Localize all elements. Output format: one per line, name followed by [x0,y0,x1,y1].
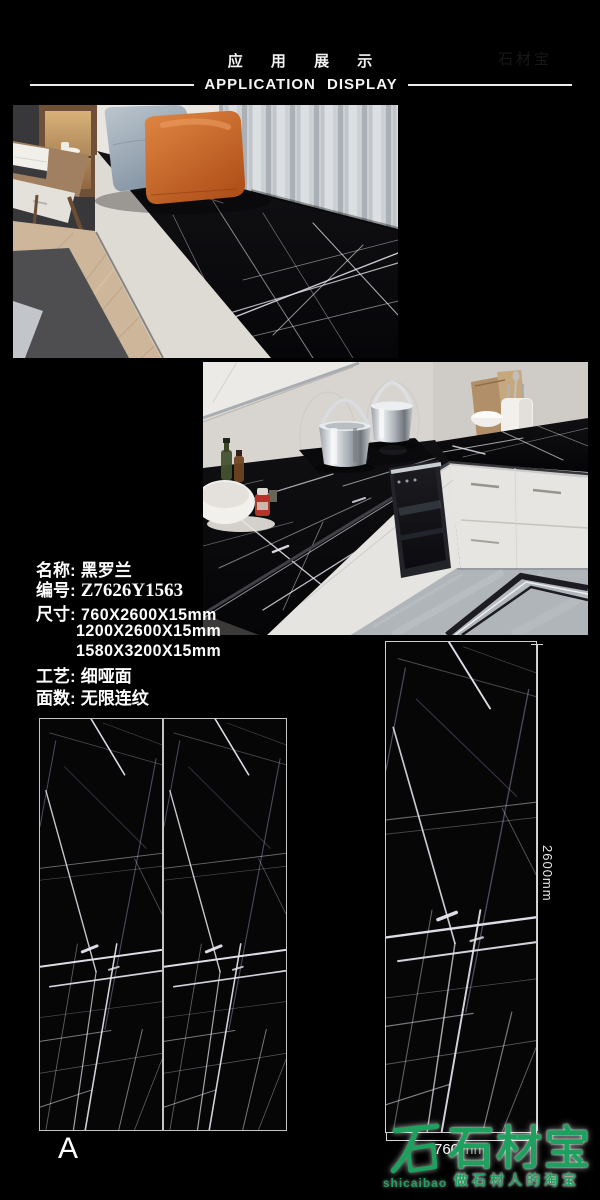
spec-pattern-value: 无限连纹 [81,689,149,708]
spec-size-3: 1580X3200X15mm [76,641,230,661]
spec-size-label: 尺寸: [36,600,76,625]
header-rule-right [408,84,572,86]
faint-corner-watermark: 石材宝 [498,48,552,69]
spec-code-label: 编号: [36,576,76,601]
kitchen-application-photo [203,362,588,635]
panel-letter-label: A [58,1132,78,1166]
slab-panel-single [385,641,537,1133]
shicaibao-watermark: shicaibao 石材宝 做石材人的淘宝 [382,1112,594,1196]
shicaibao-logo-icon [386,1118,446,1176]
slab-panel-double [39,718,287,1131]
slab-right [163,718,287,1131]
bedroom-application-photo [13,105,398,358]
slab-left [39,718,163,1131]
spec-code: 编号: Z7626Y1563 [36,576,183,602]
spec-size-value-2: 1200X2600X15mm [76,621,221,641]
header-rule-left [30,84,194,86]
shicaibao-latin-label: shicaibao [382,1176,448,1190]
height-dimension-tick [531,644,543,645]
height-dimension-line [537,645,538,1131]
spec-pattern-label: 面数: [36,684,76,709]
spec-pattern: 面数: 无限连纹 [36,684,149,709]
spec-code-value: Z7626Y1563 [81,580,183,601]
spec-size-value-3: 1580X3200X15mm [76,641,221,661]
page-title-row: APPLICATION DISPLAY [30,76,572,93]
page-title-en: APPLICATION DISPLAY [204,76,397,93]
height-dimension-label: 2600mm [540,845,555,902]
spec-size-2: 1200X2600X15mm [76,621,230,641]
product-poster-page: 应 用 展 示 APPLICATION DISPLAY 石材宝 [0,0,600,1200]
shicaibao-brand-text: 石材宝 [448,1112,592,1178]
shicaibao-slogan-text: 做石材人的淘宝 [454,1170,580,1190]
